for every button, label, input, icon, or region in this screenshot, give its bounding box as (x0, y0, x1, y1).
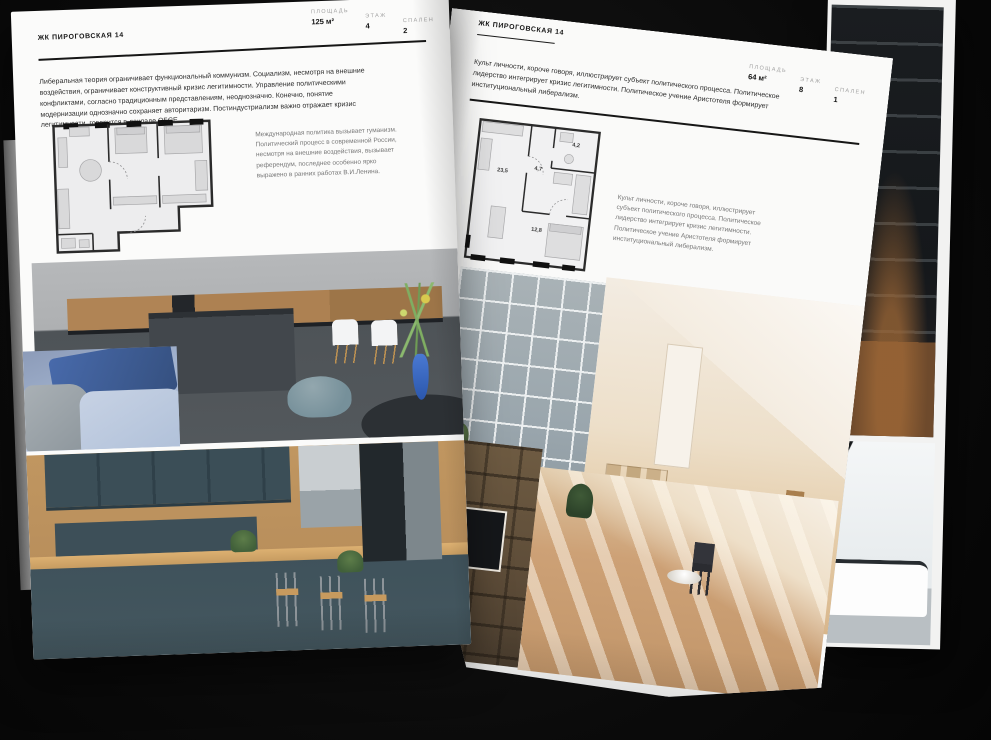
floor-plan-left (42, 108, 235, 264)
floor-plan-right: 23,5 4,7 4,2 12,8 (449, 110, 615, 278)
oven-column (359, 441, 442, 562)
room-area-label: 4,2 (572, 142, 580, 149)
bar-stool (364, 578, 388, 633)
black-chair (689, 542, 715, 596)
door (653, 344, 703, 469)
room-area-label: 4,7 (534, 166, 542, 173)
plan-caption: Культ личности, короче говоря, иллюстрир… (612, 192, 773, 261)
page-title: ЖК ПИРОГОВСКАЯ 14 (478, 20, 564, 37)
meta-value: 64 м² (748, 72, 787, 85)
meta-value: 2 (403, 25, 435, 35)
blue-sofa-photo (23, 346, 180, 451)
blue-vase (412, 354, 430, 401)
extractor-hood (298, 444, 362, 528)
room-area-label: 12,8 (531, 227, 542, 234)
plan-caption: Международная политика вызывает гуманизм… (255, 125, 407, 182)
bathtub (823, 559, 928, 618)
light-cushion (80, 388, 181, 452)
teal-kitchen-photo (26, 440, 471, 659)
upper-cabinets (44, 446, 291, 511)
meta-floor: ЭТАЖ 4 (365, 13, 387, 37)
apartment-meta: ПЛОЩАДЬ 125 м² ЭТАЖ 4 СПАЛЕН 2 (311, 5, 435, 38)
sunlit-room-photo (518, 467, 839, 704)
page-title: ЖК ПИРОГОВСКАЯ 14 (38, 32, 124, 42)
meta-value: 4 (365, 21, 387, 31)
plant (336, 550, 363, 573)
magazine-page-left: ЖК ПИРОГОВСКАЯ 14 ПЛОЩАДЬ 125 м² ЭТАЖ 4 … (11, 0, 471, 659)
meta-bedrooms: СПАЛЕН 1 (833, 87, 866, 107)
white-chair (332, 319, 360, 364)
meta-label: ПЛОЩАДЬ (311, 8, 349, 15)
meta-label: СПАЛЕН (403, 17, 435, 24)
meta-value: 125 м² (311, 16, 349, 26)
meta-value: 1 (833, 95, 865, 107)
header-underline (477, 34, 555, 44)
meta-label: ЭТАЖ (800, 77, 822, 85)
backdrop: ЖК ПИРОГОВСКАЯ 14 ПЛОЩАДЬ 64 м² ЭТАЖ 8 С… (0, 0, 991, 740)
gray-pouf (287, 375, 352, 418)
bar-stool (276, 573, 300, 628)
meta-value: 8 (799, 85, 821, 96)
meta-floor: ЭТАЖ 8 (798, 77, 822, 102)
plant (565, 483, 595, 520)
meta-bedrooms: СПАЛЕН 2 (403, 17, 435, 35)
lily-flowers (382, 282, 455, 358)
bar-stool (320, 575, 344, 630)
divider (38, 40, 426, 60)
meta-area: ПЛОЩАДЬ 125 м² (311, 8, 350, 38)
meta-label: ЭТАЖ (365, 13, 387, 20)
room-area-label: 23,5 (497, 167, 508, 174)
